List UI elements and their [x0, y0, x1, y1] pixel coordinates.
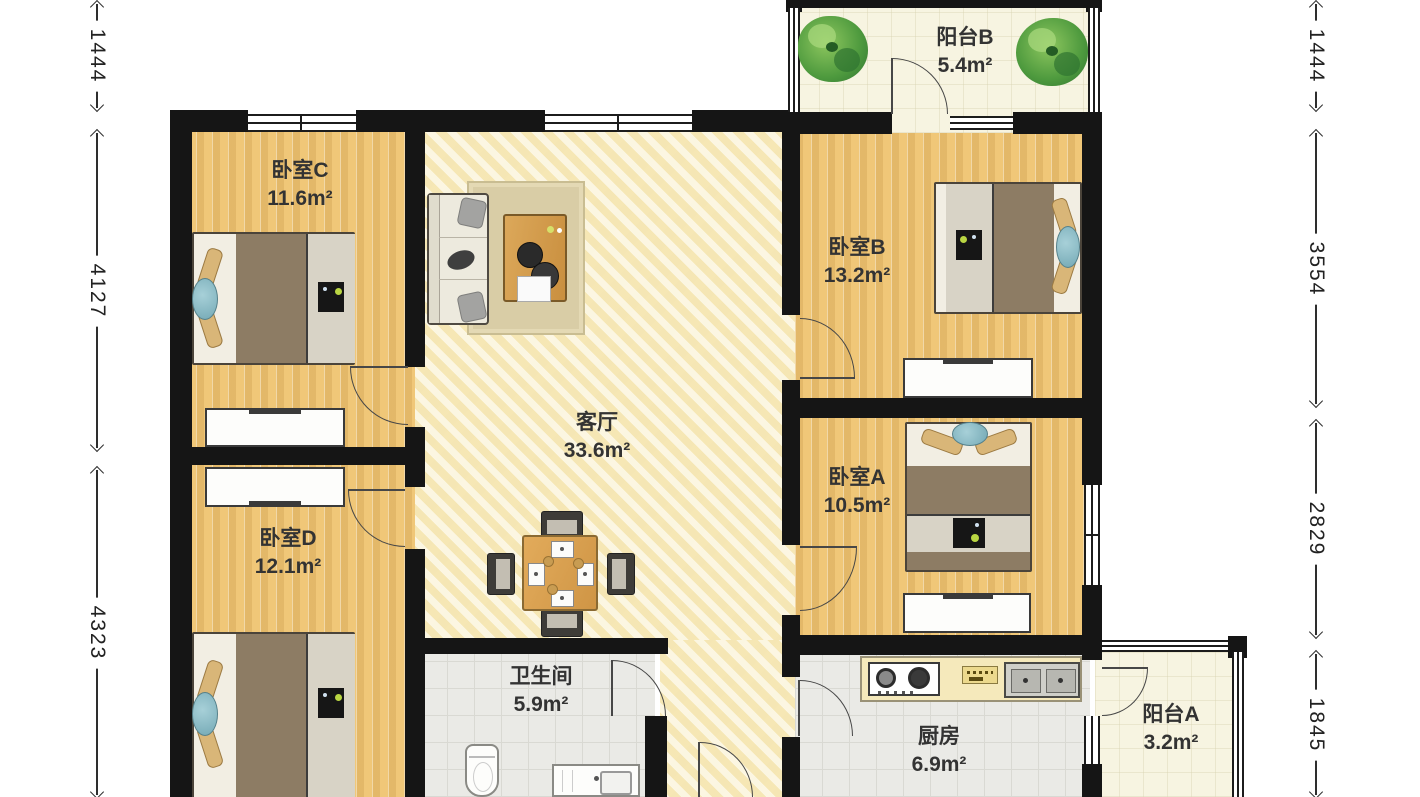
control-panel: [962, 666, 998, 684]
plant-leaf: [834, 48, 860, 72]
toilet-seat: [473, 762, 493, 792]
room-name: 卧室D: [208, 525, 368, 553]
room-label-balcony-a: 阳台A 3.2m²: [1091, 701, 1251, 756]
decor-dot: [560, 596, 564, 600]
dining-chair: [541, 609, 583, 637]
wall: [1082, 764, 1102, 797]
decor-dot: [583, 572, 587, 576]
vanity-line: [562, 770, 563, 792]
panel-dashes: [967, 671, 993, 674]
chair-seat: [547, 614, 577, 628]
bed-cushion: [192, 278, 218, 320]
dresser-bedroom-a: [903, 593, 1031, 633]
room-label-balcony-b: 阳台B 5.4m²: [885, 24, 1045, 79]
wall: [782, 737, 800, 797]
decor-dot: [547, 226, 554, 233]
window: [950, 116, 1014, 130]
plant-center: [826, 42, 838, 52]
bed-footer: [907, 552, 1030, 570]
room-label-bedroom-a: 卧室A 10.5m²: [777, 464, 937, 519]
wall: [425, 638, 668, 654]
window-mullion: [1084, 534, 1100, 536]
tv-panel: [318, 282, 344, 312]
window-mullion: [300, 114, 302, 132]
room-area: 10.5m²: [777, 492, 937, 520]
dimension-value: 1444: [1302, 21, 1330, 92]
place-setting: [528, 563, 545, 586]
kitchen-counter: [860, 656, 1082, 702]
room-area: 6.9m²: [859, 751, 1019, 779]
room-name: 卧室B: [777, 234, 937, 262]
panel-dashes: [969, 677, 983, 681]
decor-dot: [971, 534, 979, 542]
dining-table: [522, 535, 598, 611]
room-name: 阳台A: [1091, 701, 1251, 729]
wall: [405, 427, 425, 487]
room-name: 阳台B: [885, 24, 1045, 52]
balcony-b-rail-top: [786, 0, 1102, 8]
bed-blanket: [236, 634, 306, 797]
drain: [1023, 678, 1028, 683]
bed-bedroom-b: [934, 182, 1082, 314]
dresser-bedroom-d: [205, 467, 345, 507]
room-area: 33.6m²: [517, 437, 677, 465]
vanity-line: [572, 770, 573, 792]
room-label-bathroom: 卫生间 5.9m²: [461, 663, 621, 718]
bed-blanket: [236, 234, 306, 363]
decor-dot: [335, 288, 342, 295]
bathroom-vanity: [552, 764, 640, 797]
coffee-table: [503, 214, 567, 302]
dimension-value: 4127: [83, 255, 111, 326]
dresser-bedroom-c: [205, 408, 345, 447]
wall: [645, 716, 667, 797]
dimension-value: 4323: [83, 597, 111, 668]
dimension-value: 1845: [1302, 689, 1330, 760]
bed-cushion: [952, 422, 988, 446]
decor-dot: [975, 523, 979, 527]
wall: [170, 110, 248, 132]
bed-bedroom-d: [192, 632, 355, 797]
room-label-bedroom-b: 卧室B 13.2m²: [777, 234, 937, 289]
wall: [800, 398, 1082, 418]
arrow-down-icon: [90, 98, 104, 112]
window: [248, 114, 356, 132]
tv-panel: [953, 518, 985, 548]
decor-dot: [323, 693, 327, 697]
arrow-down-icon: [1309, 625, 1323, 639]
stove: [868, 662, 940, 696]
room-area: 5.9m²: [461, 691, 621, 719]
chair-seat: [612, 559, 626, 589]
room-label-living-room: 客厅 33.6m²: [517, 409, 677, 464]
room-area: 13.2m²: [777, 262, 937, 290]
plate: [543, 556, 554, 567]
dining-chair: [607, 553, 635, 595]
sink-basin: [600, 771, 632, 795]
wall: [190, 447, 407, 465]
decor-dot: [960, 236, 967, 243]
sofa-seam: [439, 279, 487, 280]
arrow-down-icon: [1309, 98, 1323, 112]
dresser-bedroom-b: [903, 358, 1033, 398]
dimension-left-2: 4127: [85, 131, 109, 450]
plant-center: [1046, 46, 1058, 56]
dimension-value: 1444: [83, 21, 111, 92]
dimension-right-1: 1444: [1304, 2, 1328, 110]
floorplan-canvas: 阳台B 5.4m² 卧室C 11.6m² 卧室B 13.2m² 客厅 33.6m…: [0, 0, 1420, 797]
room-area: 3.2m²: [1091, 729, 1251, 757]
room-label-kitchen: 厨房 6.9m²: [859, 723, 1019, 778]
room-label-bedroom-d: 卧室D 12.1m²: [208, 525, 368, 580]
chair-seat: [547, 520, 577, 534]
balcony-b-rail-right: [1088, 8, 1100, 112]
room-label-bedroom-c: 卧室C 11.6m²: [220, 157, 380, 212]
plate: [573, 558, 584, 569]
decor-dot: [560, 547, 564, 551]
wall: [782, 635, 1102, 655]
dresser-handle: [943, 594, 993, 599]
sofa: [427, 193, 489, 325]
dimension-value: 3554: [1302, 233, 1330, 304]
toilet: [465, 744, 499, 797]
room-name: 卫生间: [461, 663, 621, 691]
bed-cushion: [192, 692, 218, 736]
wall: [170, 110, 192, 797]
room-area: 5.4m²: [885, 52, 1045, 80]
wall: [1082, 112, 1102, 485]
kitchen-sink: [1004, 662, 1080, 698]
bed-bedroom-c: [192, 232, 355, 365]
window-mullion: [617, 114, 619, 132]
dresser-handle: [249, 409, 301, 414]
sink-basin: [1011, 669, 1041, 693]
decor-dot: [323, 287, 327, 291]
chair-seat: [496, 559, 510, 589]
bed-cushion: [1056, 226, 1080, 268]
sofa-cushion-dark: [445, 247, 477, 273]
dining-chair: [487, 553, 515, 595]
tv-panel: [318, 688, 344, 718]
throw-pillow: [456, 197, 487, 230]
book: [517, 276, 551, 302]
throw-pillow: [456, 291, 487, 324]
tv-panel: [956, 230, 982, 260]
sofa-seam: [439, 237, 487, 238]
dimension-right-2: 3554: [1304, 131, 1328, 406]
room-name: 客厅: [517, 409, 677, 437]
dresser-handle: [943, 359, 993, 364]
room-name: 厨房: [859, 723, 1019, 751]
decor-dot: [534, 572, 538, 576]
faucet: [594, 776, 599, 781]
room-area: 12.1m²: [208, 553, 368, 581]
wall: [692, 110, 788, 132]
room-name: 卧室A: [777, 464, 937, 492]
balcony-a-rail-top: [1102, 640, 1228, 652]
decor-dot: [972, 235, 976, 239]
dimension-left-1: 1444: [85, 2, 109, 110]
plate: [547, 584, 558, 595]
bed-blanket: [994, 184, 1054, 312]
dimension-left-3: 4323: [85, 468, 109, 797]
place-setting: [551, 541, 574, 558]
room-area: 11.6m²: [220, 185, 380, 213]
toilet-tank-line: [469, 756, 495, 758]
decor-dot: [335, 694, 342, 701]
wall: [356, 110, 545, 132]
arrow-down-icon: [1309, 394, 1323, 408]
decor-dot: [557, 228, 562, 233]
room-name: 卧室C: [220, 157, 380, 185]
arrow-down-icon: [90, 438, 104, 452]
dimension-right-3: 2829: [1304, 421, 1328, 637]
wall: [405, 549, 425, 797]
arrow-down-icon: [1309, 785, 1323, 797]
dimension-right-4: 1845: [1304, 652, 1328, 797]
sink-basin: [1046, 669, 1076, 693]
plant-leaf: [1054, 52, 1080, 76]
wall: [405, 132, 425, 367]
dresser-handle: [249, 501, 301, 506]
sofa-back: [429, 195, 440, 323]
wall: [788, 112, 892, 134]
stove-knobs: [878, 691, 918, 694]
burner: [908, 667, 930, 689]
wall: [782, 380, 800, 545]
plant: [798, 16, 868, 82]
arrow-down-icon: [90, 785, 104, 797]
dimension-value: 2829: [1302, 494, 1330, 565]
drain: [1058, 678, 1063, 683]
burner: [876, 668, 896, 688]
